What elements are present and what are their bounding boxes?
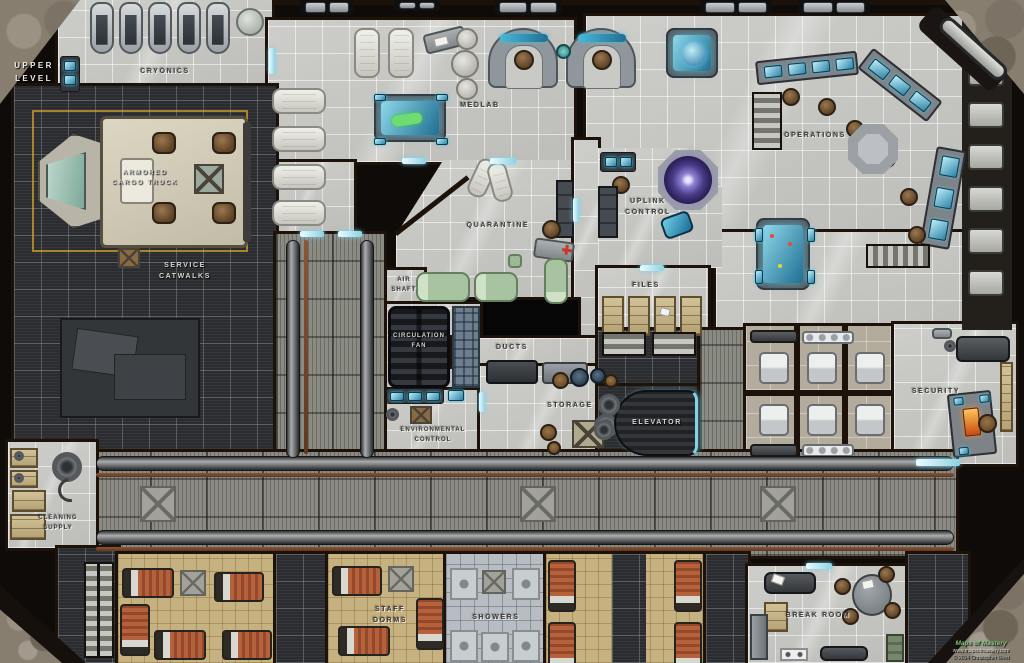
shower-stall [450, 568, 478, 600]
chair [834, 578, 851, 595]
side-table [932, 328, 952, 339]
landing-tile [760, 486, 796, 522]
landing-tile [520, 486, 556, 522]
dorm-bed [120, 604, 150, 656]
corner-panel [374, 138, 386, 145]
pipe-vertical-west [286, 240, 300, 458]
equipment-cabinet [598, 186, 618, 238]
arch-light [500, 34, 548, 42]
cryopod [119, 2, 143, 54]
chair [878, 566, 895, 583]
med-tray [451, 50, 479, 78]
shower-stall [512, 630, 540, 662]
med-pod [388, 28, 414, 78]
door-medlab-quarantine [402, 158, 426, 164]
console-screen [605, 157, 617, 167]
shower-stall [450, 630, 478, 662]
planet-hologram [682, 42, 706, 66]
door-quarantine-hall [573, 198, 579, 222]
supply-crates [886, 634, 904, 662]
ops-chair [900, 188, 918, 206]
pipe-north [96, 456, 954, 471]
door-north-1 [300, 0, 354, 15]
dorm-bed [154, 630, 206, 660]
corridor-breakroom [706, 554, 748, 663]
quarantine-bed [474, 272, 518, 302]
seat-bench [802, 331, 854, 344]
stair-rail [97, 562, 100, 658]
corner-panel [807, 228, 815, 242]
med-pod [354, 28, 380, 78]
door-north-4 [700, 0, 772, 15]
bunk-bed [759, 404, 789, 436]
label-circulation-fan: Circulation Fan [388, 332, 450, 351]
vent-strip-b [612, 554, 646, 663]
corner-panel [374, 94, 386, 101]
uplink-console [600, 152, 636, 172]
cryopod [177, 2, 201, 54]
dorm-bed [338, 626, 390, 656]
console-screen [64, 75, 76, 85]
ops-chair [782, 88, 800, 106]
valve-wheel [386, 408, 399, 421]
vent-strip-a [276, 554, 328, 663]
cryopod [148, 2, 172, 54]
door-cryonics-east [269, 48, 275, 74]
security-bench [956, 336, 1010, 362]
pipe-small-vertical [304, 240, 308, 454]
console-screen [764, 65, 783, 79]
wall-fixture [944, 340, 956, 352]
door-north-2 [394, 0, 440, 11]
console-screen [787, 62, 806, 76]
door-corridor-north-2 [338, 231, 362, 237]
console-screen [64, 61, 76, 71]
pipe-small-south [96, 547, 954, 551]
console-screen [979, 394, 990, 403]
wall-panel [968, 144, 1004, 170]
barrel-blue [570, 368, 589, 387]
corridor-east [700, 330, 746, 460]
console-screen [928, 218, 949, 241]
stool [592, 50, 612, 70]
label-uplink-control: Uplink Control [618, 196, 678, 218]
console-screen [811, 60, 830, 74]
console-screen [620, 157, 632, 167]
ops-stairs-south [866, 244, 930, 268]
barrel [547, 441, 561, 455]
shower-stall [481, 632, 509, 662]
dial [14, 451, 24, 461]
ops-chair [908, 226, 926, 244]
publisher-logo: Maps of Mastery [942, 640, 1020, 648]
console-screen [888, 74, 912, 97]
barrel [540, 424, 557, 441]
round-table [236, 8, 264, 36]
landing-tile [388, 566, 414, 592]
green-stool [508, 254, 522, 268]
ops-chair [818, 98, 836, 116]
level-label: Upper Level [6, 60, 62, 86]
bunk-bed [807, 404, 837, 436]
med-tray [456, 78, 478, 100]
crate [410, 406, 432, 424]
dorm-bed [548, 622, 576, 663]
bunk-bed [759, 352, 789, 384]
file-cabinet [680, 296, 702, 336]
door-leaf [499, 2, 527, 13]
stairs-down [602, 332, 646, 356]
ops-stairs-west [752, 92, 782, 150]
console-screen [958, 447, 969, 456]
landing-tile [482, 570, 506, 594]
med-pod [272, 88, 326, 114]
dorm-bed [214, 572, 264, 602]
truck-bumper [243, 122, 251, 242]
shelf-box [12, 490, 46, 512]
console-screen [835, 57, 854, 71]
quarantine-bed [416, 272, 470, 302]
vent-grate-tiles [452, 306, 480, 388]
dorm-bed [416, 598, 444, 650]
shower-stall [512, 568, 540, 600]
truck-seat [152, 202, 176, 224]
machine-block [114, 354, 186, 400]
dorm-bed [548, 560, 576, 612]
label-elevator: Elevator [622, 417, 692, 428]
cell-wall [746, 390, 894, 396]
stool [514, 50, 534, 70]
counter [750, 614, 768, 660]
chair [884, 602, 901, 619]
crate [118, 248, 140, 268]
wall-panel [968, 228, 1004, 254]
label-medlab: Medlab [450, 100, 510, 111]
door-leaf [399, 2, 416, 9]
landing-tile [140, 486, 176, 522]
round-hatch [598, 394, 620, 416]
med-pod [272, 126, 326, 152]
stairs-down [652, 332, 696, 356]
dorm-bed [674, 560, 702, 612]
door-leaf [836, 2, 866, 13]
bench [750, 330, 798, 343]
label-quarantine: Quarantine [458, 220, 538, 231]
map-marker [770, 234, 774, 238]
med-tray [456, 28, 478, 50]
label-break-room: Break Room [780, 610, 856, 621]
corner-panel [807, 270, 815, 284]
label-armored-cargo-truck: Armored Cargo Truck [106, 168, 184, 189]
ops-dais-top [858, 134, 888, 164]
round-hatch [594, 420, 614, 440]
file-cabinet [628, 296, 650, 336]
label-ducts: Ducts [488, 342, 536, 353]
label-security: Security [908, 386, 964, 397]
door-north-3 [494, 0, 562, 15]
door-leaf [419, 2, 436, 9]
dorm-bed [122, 568, 174, 598]
publisher-url: www.mapsofmastery.com [942, 648, 1020, 655]
barrel [604, 374, 618, 388]
corner-panel [436, 138, 448, 145]
env-console-bank [386, 388, 444, 404]
label-environmental-control: Environmental Control [392, 426, 474, 445]
door-leaf [329, 2, 350, 13]
locker [1000, 362, 1013, 432]
couch [820, 646, 868, 661]
corner-panel [755, 228, 763, 242]
cryopod [206, 2, 230, 54]
storage-machine [486, 360, 538, 384]
door-corridor-north-1 [300, 231, 324, 237]
holo-map-screen [763, 225, 803, 283]
door-uplink-south [640, 265, 664, 271]
console-screen [867, 58, 891, 81]
scanner-table [374, 94, 446, 142]
console-screen [933, 187, 954, 210]
door-medlab-quarantine-2 [490, 158, 516, 164]
chair [542, 220, 561, 239]
paper [433, 35, 449, 47]
machinery-pit [60, 318, 200, 418]
pipe-south [96, 530, 954, 545]
door-leaf [738, 2, 768, 13]
truck-seat [152, 132, 176, 154]
quarantine-recliner [544, 258, 568, 304]
barrel [978, 414, 997, 433]
corner-panel [755, 270, 763, 284]
label-air-shaft: Air Shaft [384, 276, 424, 295]
wall-panel [968, 270, 1004, 296]
label-showers: Showers [464, 612, 528, 623]
truck-seat [212, 202, 236, 224]
pipe-vertical-east [360, 240, 374, 458]
appliances [780, 648, 808, 661]
door-storage-west [479, 392, 485, 412]
console-screen [939, 155, 960, 178]
copyright-line: © 2014 Christopher West [942, 655, 1020, 662]
bunk-bed [855, 404, 885, 436]
landing-tile [180, 570, 206, 596]
holo-globe-table [666, 28, 718, 78]
door-leaf [705, 2, 735, 13]
holo-map-table [756, 218, 810, 290]
door-breakroom-north [806, 563, 832, 569]
label-staff-dorms: Staff Dorms [360, 604, 420, 626]
door-north-5 [798, 0, 870, 15]
console-screen [953, 397, 964, 406]
credits-block: Maps of Mastery www.mapsofmastery.com © … [942, 640, 1020, 661]
corner-panel [436, 94, 448, 101]
red-cross-icon [564, 245, 568, 255]
cryo-console [60, 56, 80, 92]
wall-panel [968, 186, 1004, 212]
console-screen [908, 90, 932, 113]
cryopod [90, 2, 114, 54]
label-operations: Operations [775, 130, 855, 141]
console-screen [426, 392, 440, 401]
dorm-bed [674, 622, 702, 663]
barrel [552, 372, 569, 389]
door-security-south [916, 459, 960, 466]
console-screen [408, 392, 422, 401]
wall-panel [968, 102, 1004, 128]
med-pod [272, 164, 326, 190]
med-pod [272, 200, 326, 226]
dial [14, 473, 24, 483]
cargo-crate [194, 164, 224, 194]
label-files: Files [622, 280, 670, 291]
bunk-bed [855, 352, 885, 384]
bunk-bed [807, 352, 837, 384]
arch-light [578, 34, 626, 42]
door-leaf [530, 2, 558, 13]
door-leaf [305, 2, 326, 13]
pipe-small-north [96, 473, 954, 477]
file-cabinet [602, 296, 624, 336]
truck-seat [212, 132, 236, 154]
mining-colony-map: Mining Colony Upper Level Cryonics Medla… [0, 0, 1024, 663]
label-storage: Storage [540, 400, 600, 411]
door-leaf [803, 2, 833, 13]
console-screen [390, 392, 404, 401]
dorm-bed [332, 566, 382, 596]
map-marker [788, 242, 792, 246]
label-cryonics: Cryonics [130, 66, 200, 77]
map-marker [778, 264, 782, 268]
label-service-catwalks: Service Catwalks [150, 260, 220, 282]
basin [556, 44, 571, 59]
aux-screen [448, 390, 464, 401]
dorm-bed [222, 630, 272, 660]
label-cleaning-supply: Cleaning Supply [28, 514, 88, 533]
